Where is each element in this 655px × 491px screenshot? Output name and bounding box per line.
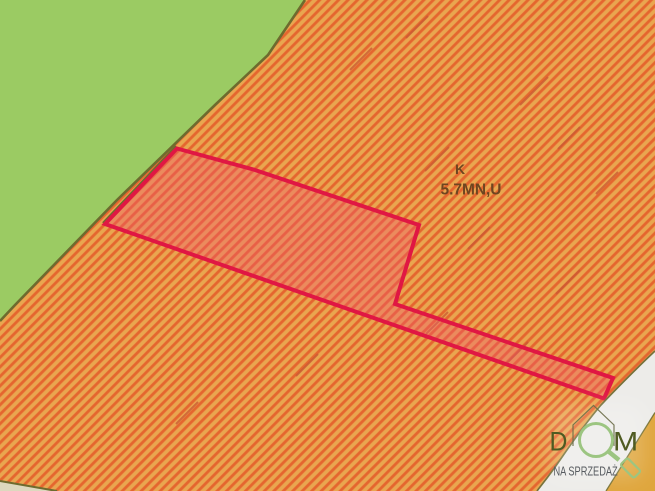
svg-text:K: K: [455, 161, 465, 177]
svg-text:M: M: [613, 427, 638, 457]
svg-text:D: D: [550, 428, 568, 457]
svg-text:5.7MN,U: 5.7MN,U: [441, 182, 502, 199]
svg-text:NA SPRZEDAŻ: NA SPRZEDAŻ: [554, 464, 618, 479]
